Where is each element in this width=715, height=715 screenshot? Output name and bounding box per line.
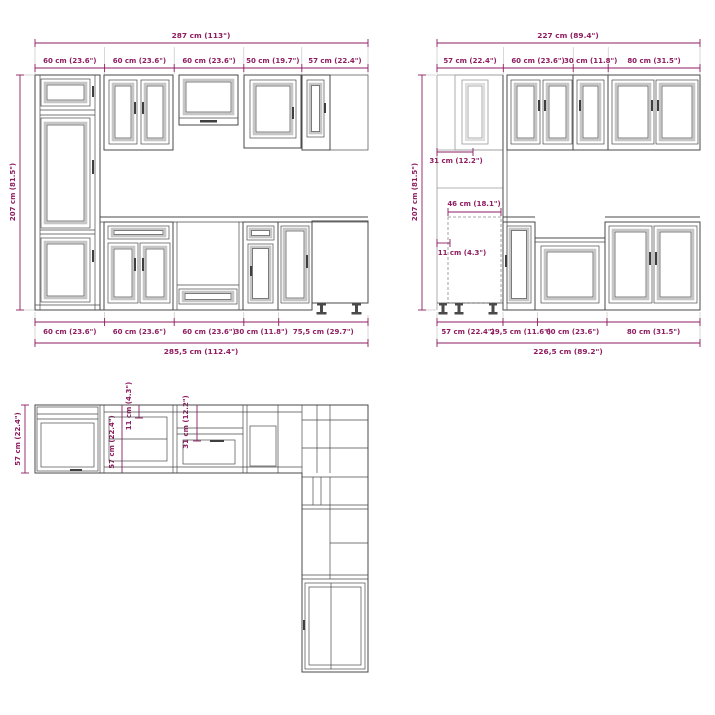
front-overall-bottom-dim: 285,5 cm (112.4"): [35, 339, 368, 356]
dim-label: 60 cm (23.6"): [43, 57, 96, 65]
adjustable-foot: [489, 303, 498, 315]
wall-cabinet-80-side: [608, 75, 700, 150]
dim-label: 46 cm (18.1"): [447, 200, 500, 208]
side-overall-width-dim: 227 cm (89.4"): [437, 31, 700, 47]
side-overall-bottom-dim: 226,5 cm (89.2"): [437, 339, 700, 356]
corner-tall-section-side: [437, 75, 507, 315]
dim-label: 207 cm (81.5"): [9, 163, 17, 221]
adjustable-foot: [317, 303, 327, 315]
dim-label: 29,5 cm (11.6"): [490, 328, 551, 336]
base-low-cabinet-side: [535, 238, 605, 310]
flipup-cabinet-front: [179, 75, 238, 125]
dim-label: 57 cm (22.4"): [308, 57, 361, 65]
wall-cabinet-30-side: [573, 75, 608, 150]
dim-label: 207 cm (81.5"): [411, 163, 419, 221]
dim-label: 60 cm (23.6"): [113, 328, 166, 336]
front-elevation-view: 287 cm (113") 60 cm (23.6") 60 cm (23.6"…: [9, 31, 368, 356]
wall-cabinet-60-side: [507, 75, 573, 150]
plan-view: 57 cm (22.4") 57 cm (22.4") 11 cm (4.3")…: [14, 382, 368, 672]
base-cabinet-60-front: [104, 222, 173, 310]
appliance-bay-front: [173, 222, 243, 310]
dim-label: 11 cm (4.3"): [125, 382, 133, 431]
dim-label: 80 cm (31.5"): [627, 57, 680, 65]
dim-label: 60 cm (23.6"): [546, 328, 599, 336]
dim-label: 80 cm (31.5"): [627, 328, 680, 336]
dim-label: 226,5 cm (89.2"): [533, 347, 602, 356]
base-door-cabinet-front: [278, 222, 312, 310]
dim-label: 30 cm (11.8"): [235, 328, 288, 336]
side-top-segment-dims: 57 cm (22.4") 60 cm (23.6") 30 cm (11.8"…: [437, 57, 700, 72]
dim-label: 31 cm (12.2"): [429, 157, 482, 165]
dim-label: 50 cm (19.7"): [246, 57, 299, 65]
dim-label: 60 cm (23.6"): [113, 57, 166, 65]
dim-label: 57 cm (22.4"): [443, 57, 496, 65]
dim-label: 57 cm (22.4"): [14, 412, 22, 465]
adjustable-foot: [455, 303, 464, 315]
front-overall-width-dim: 287 cm (113"): [35, 31, 368, 47]
dim-label: 11 cm (4.3"): [438, 249, 487, 257]
plan-inner-dims: 57 cm (22.4") 11 cm (4.3") 31 cm (12.2"): [108, 382, 201, 473]
plan-vertical-run: [302, 477, 368, 669]
plan-outline: [35, 405, 368, 672]
base-narrow-cabinet-side: [503, 217, 535, 310]
dim-label: 75,5 cm (29.7"): [293, 328, 354, 336]
front-height-dim: 207 cm (81.5"): [9, 75, 24, 310]
dim-label: 60 cm (23.6"): [182, 328, 235, 336]
side-inner-dims: 31 cm (12.2") 46 cm (18.1") 11 cm (4.3"): [429, 148, 501, 257]
wall-cabinet-60-front: [104, 75, 173, 150]
base-cabinet-30-front: [243, 222, 278, 310]
dim-label: 60 cm (23.6"): [182, 57, 235, 65]
narrow-wall-cabinet-front: [302, 75, 368, 150]
front-bottom-segment-dims: 60 cm (23.6") 60 cm (23.6") 60 cm (23.6"…: [35, 318, 368, 336]
dim-label: 227 cm (89.4"): [537, 31, 599, 40]
dim-label: 285,5 cm (112.4"): [164, 347, 239, 356]
dim-label: 57 cm (22.4"): [441, 328, 494, 336]
plan-depth-dim: 57 cm (22.4"): [14, 405, 29, 473]
dim-label: 60 cm (23.6"): [511, 57, 564, 65]
front-top-segment-dims: 60 cm (23.6") 60 cm (23.6") 60 cm (23.6"…: [35, 57, 368, 72]
adjustable-foot: [439, 303, 448, 315]
tall-cabinet-front: [35, 75, 100, 310]
base-cabinet-80-side: [503, 217, 700, 310]
side-elevation-view: 227 cm (89.4") 57 cm (22.4") 60 cm (23.6…: [411, 31, 700, 356]
diagram-svg: 287 cm (113") 60 cm (23.6") 60 cm (23.6"…: [0, 0, 715, 715]
product-dimension-diagram: 287 cm (113") 60 cm (23.6") 60 cm (23.6"…: [0, 0, 715, 715]
side-height-dim: 207 cm (81.5"): [411, 75, 426, 310]
wall-cabinet-50-front: [244, 75, 301, 148]
plan-corner-cabinet: [37, 407, 98, 471]
dim-label: 60 cm (23.6"): [43, 328, 96, 336]
dim-label: 287 cm (113"): [172, 31, 231, 40]
adjustable-foot: [352, 303, 362, 315]
side-bottom-segment-dims: 57 cm (22.4") 29,5 cm (11.6") 60 cm (23.…: [437, 318, 700, 336]
dim-label: 30 cm (11.8"): [564, 57, 617, 65]
